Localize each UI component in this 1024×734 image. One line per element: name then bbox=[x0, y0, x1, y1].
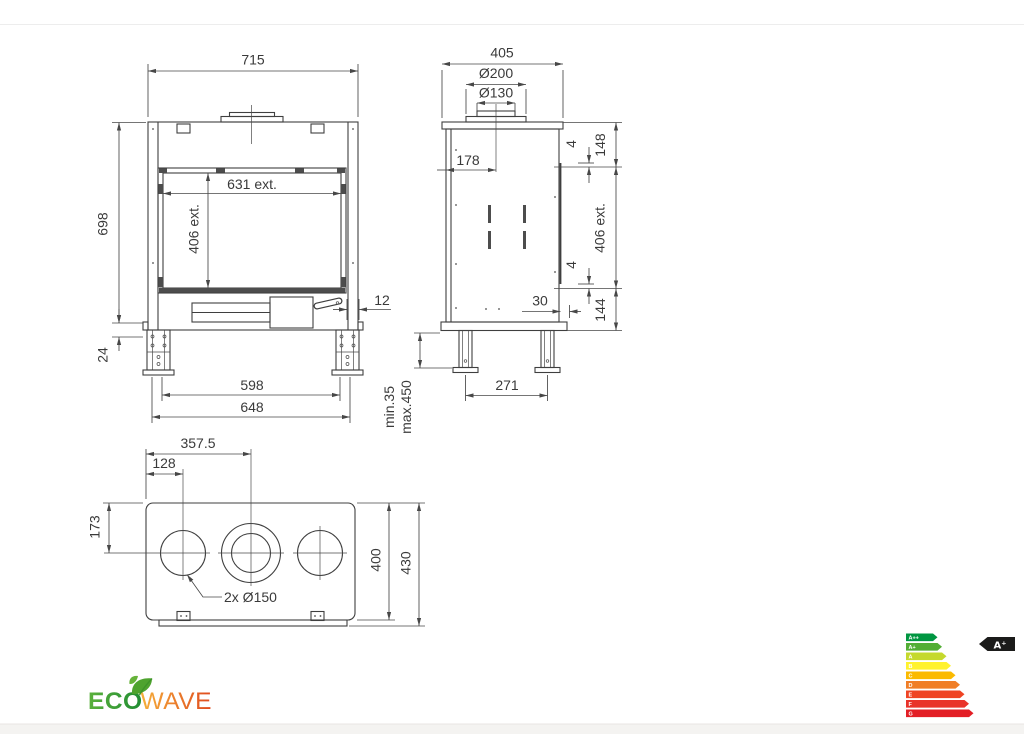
flue-collar-front bbox=[221, 117, 283, 123]
side-gap-bottom-dim: 4 bbox=[563, 261, 579, 269]
front-base bbox=[192, 297, 339, 328]
holes-leader-line bbox=[187, 575, 222, 598]
total-depth-dim: 430 bbox=[398, 551, 414, 575]
feet-outer-dim: 648 bbox=[240, 399, 264, 415]
glass-offset-dim: 30 bbox=[532, 293, 548, 309]
control-box bbox=[270, 297, 313, 328]
side-legs bbox=[453, 331, 560, 373]
energy-band-c-label: C bbox=[909, 674, 913, 680]
energy-efficiency-label: A++ A+ A B C D E F G A⁺ bbox=[906, 634, 1015, 718]
bottom-view: 357.5 128 173 400 430 2x Ø150 bbox=[87, 435, 426, 626]
front-view: 715 698 24 631 ext. 406 ext. 12 598 bbox=[95, 52, 392, 424]
front-height-dim: 698 bbox=[95, 212, 111, 236]
body-depth-dim: 400 bbox=[368, 548, 384, 572]
energy-band-e-label: E bbox=[909, 693, 913, 699]
holes-label: 2x Ø150 bbox=[224, 589, 277, 605]
energy-rating-value: A⁺ bbox=[993, 641, 1006, 652]
page: 715 698 24 631 ext. 406 ext. 12 598 bbox=[0, 0, 1024, 734]
front-leg-adjust-dim: 24 bbox=[95, 347, 111, 363]
hole-center-y-dim: 173 bbox=[87, 515, 103, 539]
side-bottom-section-dim: 144 bbox=[592, 298, 608, 322]
energy-band-c bbox=[906, 672, 956, 680]
flue-inner-dim: Ø130 bbox=[479, 85, 513, 101]
side-top-section-dim: 148 bbox=[592, 133, 608, 157]
flue-center-dim: 178 bbox=[456, 152, 480, 168]
logo-wave-text: WAVE bbox=[141, 688, 212, 715]
energy-band-app-label: A++ bbox=[909, 636, 919, 642]
glass-height-dim: 406 ext. bbox=[186, 204, 202, 254]
energy-band-f bbox=[906, 700, 969, 708]
front-width-dim: 715 bbox=[241, 52, 265, 68]
glass-width-dim: 631 ext. bbox=[227, 176, 277, 192]
side-gap-top-dim: 4 bbox=[563, 140, 579, 148]
energy-band-ap-label: A+ bbox=[909, 645, 916, 651]
energy-band-a-label: A bbox=[909, 655, 913, 661]
front-legs bbox=[143, 330, 363, 375]
side-glass-height-dim: 406 ext. bbox=[592, 203, 608, 253]
front-body-outline bbox=[143, 105, 363, 330]
feet-spacing-dim: 271 bbox=[495, 377, 519, 393]
side-dimensions: 405 Ø200 Ø130 178 148 406 ext. 144 bbox=[381, 45, 622, 434]
side-view: 405 Ø200 Ø130 178 148 406 ext. 144 bbox=[381, 45, 622, 434]
energy-band-b-label: B bbox=[909, 664, 913, 670]
energy-band-d bbox=[906, 681, 960, 689]
front-frame-offset-dim: 12 bbox=[374, 292, 390, 308]
energy-band-g bbox=[906, 710, 974, 718]
flue-center-x-dim: 357.5 bbox=[180, 435, 215, 451]
technical-drawing: 715 698 24 631 ext. 406 ext. 12 598 bbox=[0, 0, 1024, 734]
side-body-outline bbox=[441, 104, 567, 331]
leg-max-dim: max.450 bbox=[398, 380, 414, 434]
feet-inner-dim: 598 bbox=[240, 377, 264, 393]
bottom-dimensions: 357.5 128 173 400 430 2x Ø150 bbox=[87, 435, 426, 626]
energy-band-d-label: D bbox=[909, 683, 913, 689]
hole-center-x-dim: 128 bbox=[152, 455, 176, 471]
bottom-strip bbox=[0, 724, 1024, 734]
flue-outer-dim: Ø200 bbox=[479, 65, 513, 81]
brand-logo: ECO WAVE bbox=[88, 676, 212, 715]
leg-min-dim: min.35 bbox=[381, 386, 397, 428]
energy-band-e bbox=[906, 691, 965, 699]
energy-band-g-label: G bbox=[909, 712, 913, 718]
energy-band-b bbox=[906, 662, 951, 670]
side-depth-dim: 405 bbox=[490, 45, 514, 61]
